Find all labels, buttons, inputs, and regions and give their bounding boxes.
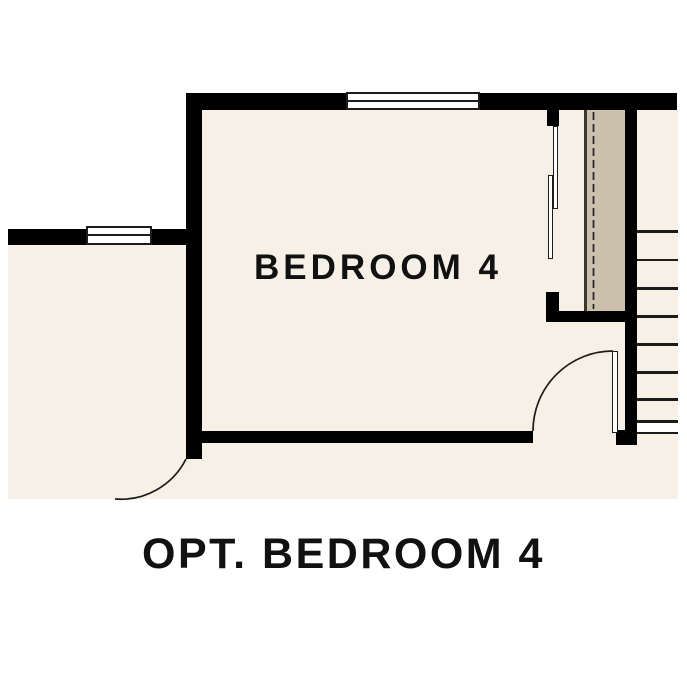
stair-tread: [637, 371, 678, 374]
hall-floor-left: [8, 245, 202, 499]
window-mullion: [88, 234, 150, 236]
closet-jamb-bottom: [546, 292, 559, 322]
stair-tread: [637, 398, 678, 401]
floor-plan: BEDROOM 4 OPT. BEDROOM 4: [0, 0, 687, 687]
stair-tread: [637, 259, 678, 262]
bedroom-wall-left: [186, 93, 202, 459]
stair-tread: [637, 420, 678, 423]
bedroom-wall-bottom: [200, 431, 533, 443]
closet-floor: [586, 110, 625, 311]
room-label: BEDROOM 4: [202, 246, 554, 290]
window-top: [346, 92, 480, 110]
closet-bypass-panel-right: [553, 126, 558, 209]
window-mullion: [348, 100, 478, 102]
closet-wall-bottom: [546, 311, 637, 322]
closet-jamb-top: [547, 110, 559, 126]
stair-tread: [637, 315, 678, 318]
closet-shelf-edge-line: [584, 110, 587, 311]
door-jamb-block: [616, 430, 637, 445]
stair-tread: [637, 287, 678, 290]
stair-tread: [637, 230, 678, 233]
window-left: [86, 226, 152, 245]
stair-tread: [637, 343, 678, 346]
plan-caption: OPT. BEDROOM 4: [0, 531, 687, 577]
stair-wall-right: [625, 110, 637, 445]
bedroom-door-leaf: [612, 351, 618, 433]
stair-tread: [637, 432, 678, 435]
